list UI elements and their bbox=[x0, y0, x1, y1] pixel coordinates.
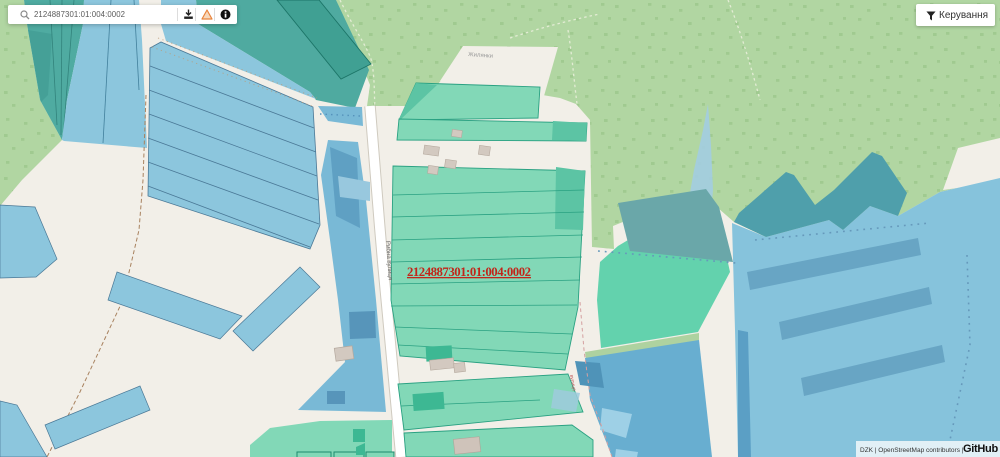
svg-text:2124887301:01:004:0002: 2124887301:01:004:0002 bbox=[407, 265, 531, 279]
